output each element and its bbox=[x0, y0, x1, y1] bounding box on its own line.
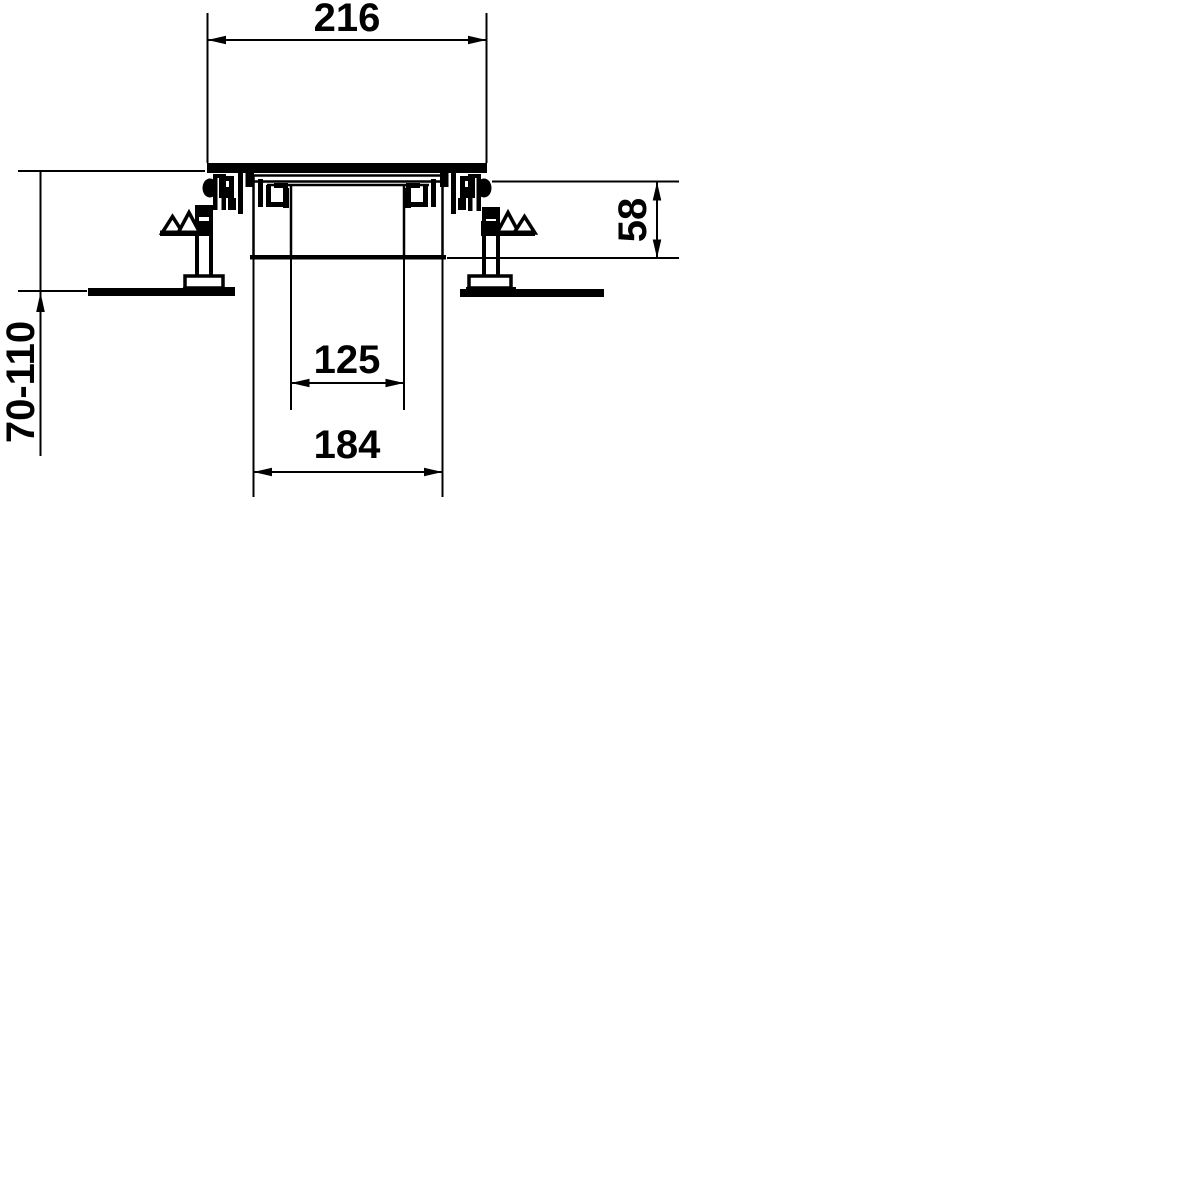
dimension-height-range: 70-110 bbox=[0, 171, 205, 456]
arrow-left-icon bbox=[208, 36, 227, 45]
dim-label-outer-opening: 184 bbox=[314, 423, 381, 467]
arrow-up-icon bbox=[653, 182, 662, 201]
hook-profile-right bbox=[405, 179, 436, 208]
arrow-left-icon bbox=[291, 379, 310, 388]
dim-label-inner-opening: 125 bbox=[314, 338, 381, 382]
raw-floor-line-right bbox=[460, 289, 604, 297]
drawing-page: 216 bbox=[0, 0, 1200, 1200]
dimension-cover-width: 216 bbox=[208, 0, 487, 163]
arrow-right-icon bbox=[386, 379, 405, 388]
arrow-left-icon bbox=[254, 468, 273, 477]
arrow-right-icon bbox=[424, 468, 443, 477]
cover-plate bbox=[207, 163, 487, 173]
arrow-up-icon bbox=[36, 293, 45, 313]
leveling-foot-right bbox=[466, 209, 535, 296]
raw-floor-line-left bbox=[88, 288, 235, 296]
box-body bbox=[250, 176, 446, 260]
dim-label-cover-width: 216 bbox=[314, 0, 381, 40]
leveling-foot-left bbox=[160, 207, 235, 296]
dim-label-height-range: 70-110 bbox=[0, 321, 43, 443]
dimension-inner-opening: 125 bbox=[291, 260, 404, 411]
dim-label-box-depth: 58 bbox=[611, 198, 655, 243]
hook-profile-left bbox=[258, 179, 289, 208]
technical-drawing: 216 bbox=[0, 0, 1200, 1200]
arrow-right-icon bbox=[468, 36, 487, 45]
